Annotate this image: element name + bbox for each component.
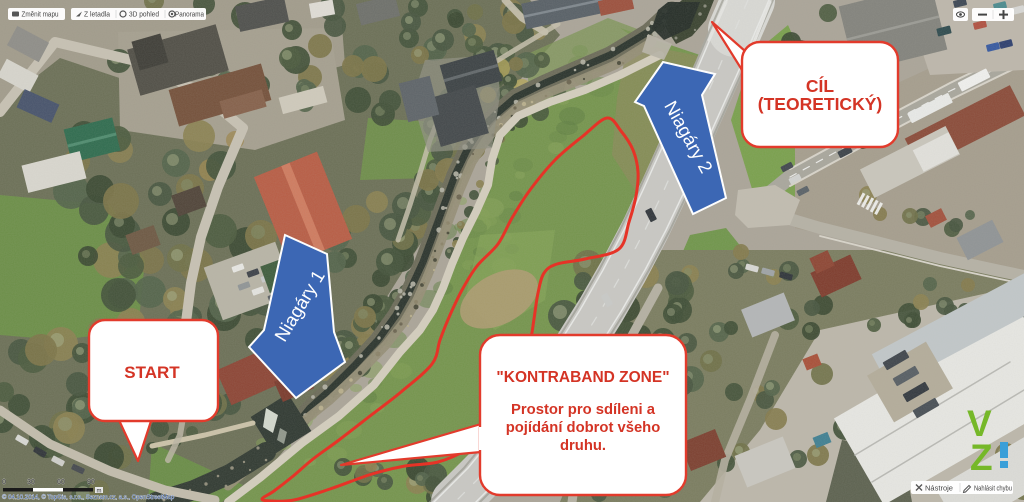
svg-text:m: m [97, 489, 102, 495]
svg-text:90: 90 [87, 479, 95, 486]
svg-text:druhu.: druhu. [560, 438, 606, 454]
svg-text:60: 60 [57, 479, 65, 486]
svg-text:(TEORETICKÝ): (TEORETICKÝ) [758, 93, 882, 114]
svg-text:START: START [124, 363, 180, 382]
svg-text:Z: Z [970, 437, 993, 478]
svg-text:Z letadla: Z letadla [84, 12, 110, 19]
svg-text:Panorama: Panorama [175, 12, 204, 19]
svg-text:"KONTRABAND ZONE": "KONTRABAND ZONE" [496, 369, 669, 386]
svg-text:CÍL: CÍL [806, 75, 835, 96]
svg-text:© 04.10.2014, © TopGis, s.r.o.: © 04.10.2014, © TopGis, s.r.o., Seznam.c… [2, 494, 175, 501]
svg-text:30: 30 [27, 479, 35, 486]
svg-text:Nástroje: Nástroje [925, 486, 953, 493]
svg-text:Změnit mapu: Změnit mapu [22, 12, 59, 19]
svg-text:pojídání dobrot všeho: pojídání dobrot všeho [506, 420, 661, 436]
svg-text:0: 0 [2, 479, 6, 486]
svg-text:Prostor pro sdíleni a: Prostor pro sdíleni a [511, 402, 656, 418]
svg-text:Nahlásit chybu: Nahlásit chybu [974, 486, 1012, 493]
svg-text:3D pohled: 3D pohled [129, 12, 159, 19]
